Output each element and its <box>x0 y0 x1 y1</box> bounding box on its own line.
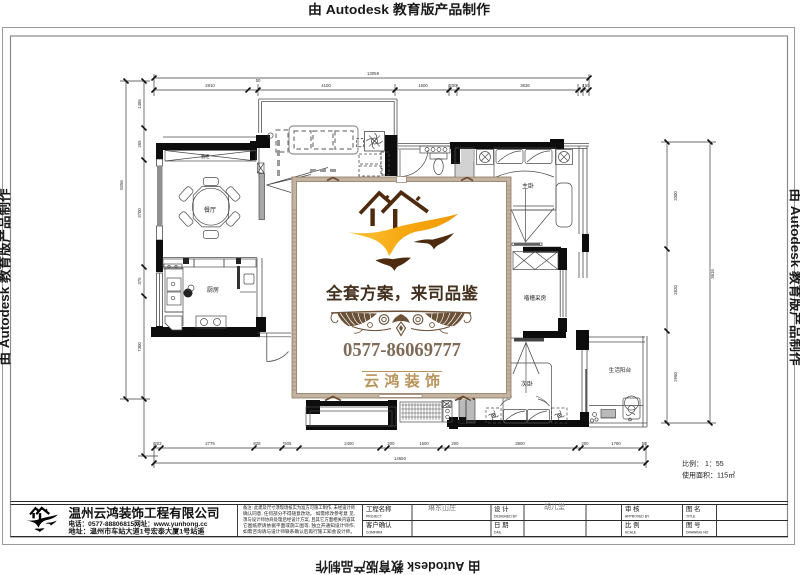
svg-text:200: 200 <box>581 441 589 446</box>
svg-text:由 Autodesk 教育版产品制作: 由 Autodesk 教育版产品制作 <box>308 2 490 17</box>
svg-text:它图纸原请依据平面或施工图等, 独立开通知设计师作,: 它图纸原请依据平面或施工图等, 独立开通知设计师作, <box>243 522 355 529</box>
svg-text:酒柜: 酒柜 <box>201 153 210 160</box>
svg-text:50: 50 <box>642 441 647 446</box>
svg-text:203: 203 <box>154 441 162 446</box>
svg-text:客户确认: 客户确认 <box>366 520 392 529</box>
svg-text:2810: 2810 <box>205 83 215 88</box>
svg-text:COMFIRM: COMFIRM <box>366 531 382 535</box>
svg-text:生活阳台: 生活阳台 <box>609 366 632 374</box>
svg-text:14650: 14650 <box>394 456 407 461</box>
svg-text:4100: 4100 <box>321 83 331 88</box>
svg-text:琳东山庄: 琳东山庄 <box>428 503 456 512</box>
svg-text:如需咨询请与设计师联系确认后再行施工知会设计师。: 如需咨询请与设计师联系确认后再行施工知会设计师。 <box>243 528 355 535</box>
svg-text:确认同意, 任何部分不得随意改动。 如需修改参考意 见,: 确认同意, 任何部分不得随意改动。 如需修改参考意 见, <box>243 510 355 517</box>
svg-text:主卧: 主卧 <box>522 182 534 190</box>
svg-text:电话：0577-88806815网址：www.yunhong: 电话：0577-88806815网址：www.yunhong.cc <box>69 519 208 528</box>
svg-text:DRAWING NO: DRAWING NO <box>686 531 709 535</box>
svg-text:全套方案，来司品鉴: 全套方案，来司品鉴 <box>325 283 479 303</box>
svg-text:2775: 2775 <box>205 441 215 446</box>
svg-text:SCALE: SCALE <box>625 531 637 535</box>
svg-text:APPROVED BY: APPROVED BY <box>625 515 650 519</box>
svg-text:使用面积：115㎡: 使用面积：115㎡ <box>682 471 735 480</box>
svg-text:次卧: 次卧 <box>521 380 533 388</box>
svg-text:1485: 1485 <box>137 99 142 109</box>
svg-text:7300: 7300 <box>137 342 142 352</box>
svg-text:厨房: 厨房 <box>207 286 219 294</box>
svg-text:由 Autodesk 教育版产品制作: 由 Autodesk 教育版产品制作 <box>316 559 481 574</box>
svg-text:3700: 3700 <box>137 208 142 218</box>
svg-text:胡儿堂: 胡儿堂 <box>544 502 565 511</box>
svg-text:PROJECT: PROJECT <box>366 515 382 519</box>
svg-text:200: 200 <box>449 83 457 88</box>
svg-text:8256: 8256 <box>119 180 124 190</box>
svg-text:0577-86069777: 0577-86069777 <box>343 340 461 361</box>
svg-text:餐厅: 餐厅 <box>204 206 216 214</box>
svg-text:TITLE: TITLE <box>686 515 696 519</box>
svg-text:DAIL: DAIL <box>494 531 502 535</box>
svg-text:3800: 3800 <box>515 441 525 446</box>
svg-text:*505: *505 <box>283 441 292 446</box>
svg-text:比 例: 比 例 <box>625 520 640 529</box>
svg-text:由 Autodesk 教育版产品制作: 由 Autodesk 教育版产品制作 <box>0 188 12 366</box>
svg-text:265: 265 <box>137 140 142 148</box>
svg-text:2820: 2820 <box>673 285 678 295</box>
svg-text:温州云鸿装饰工程有限公司: 温州云鸿装饰工程有限公司 <box>69 506 220 521</box>
svg-text:2400: 2400 <box>344 441 354 446</box>
svg-text:3616: 3616 <box>710 269 715 279</box>
svg-text:由 Autodesk 教育版产品制作: 由 Autodesk 教育版产品制作 <box>788 189 800 367</box>
svg-text:设 计: 设 计 <box>494 504 509 513</box>
svg-text:1780: 1780 <box>611 441 621 446</box>
svg-text:须与设计师协商处理后经设计方案, 且其它方面相关内容其: 须与设计师协商处理后经设计方案, 且其它方面相关内容其 <box>243 516 355 523</box>
svg-text:地址：温州市车站大道1号宏泰大厦1号站遥: 地址：温州市车站大道1号宏泰大厦1号站遥 <box>69 527 205 536</box>
svg-text:200: 200 <box>387 441 395 446</box>
svg-text:2960: 2960 <box>673 372 678 382</box>
svg-text:备注: 此建及尺寸须现场核实为准方可施工制作, 未经设计师: 备注: 此建及尺寸须现场核实为准方可施工制作, 未经设计师 <box>243 504 355 511</box>
svg-text:图 名: 图 名 <box>686 504 701 513</box>
svg-text:150: 150 <box>582 83 590 88</box>
svg-text:1600: 1600 <box>418 83 428 88</box>
svg-text:日 期: 日 期 <box>494 521 509 529</box>
svg-text:DESIGNED BY: DESIGNED BY <box>494 515 518 519</box>
svg-text:828: 828 <box>253 441 261 446</box>
svg-text:1600: 1600 <box>419 441 429 446</box>
svg-text:比例： 1：55: 比例： 1：55 <box>682 459 724 468</box>
svg-text:50: 50 <box>256 78 261 83</box>
svg-text:图 号: 图 号 <box>686 521 701 529</box>
svg-text:审 核: 审 核 <box>625 504 640 513</box>
svg-text:13059: 13059 <box>367 71 380 76</box>
svg-text:3300: 3300 <box>673 191 678 201</box>
svg-text:375: 375 <box>137 277 142 285</box>
svg-text:3636: 3636 <box>520 83 530 88</box>
svg-text:200: 200 <box>451 441 459 446</box>
svg-text:喈槽采房: 喈槽采房 <box>524 294 547 302</box>
svg-text:工程名称: 工程名称 <box>366 504 392 513</box>
